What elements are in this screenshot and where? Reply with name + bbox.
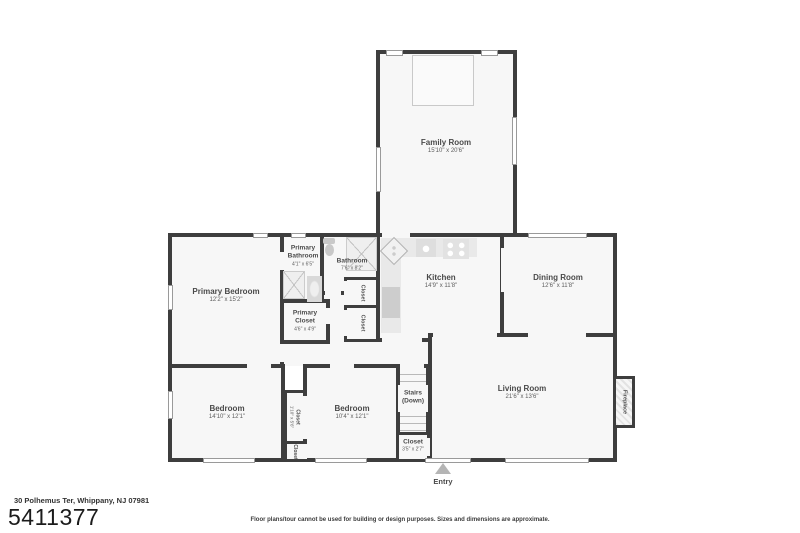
window bbox=[168, 285, 173, 310]
room-dims: 12'2" x 15'2" bbox=[192, 297, 259, 305]
room-dims: 14'9" x 11'8" bbox=[425, 283, 457, 291]
bathroom-label: Bathroom 7'6" x 8'2" bbox=[337, 258, 368, 273]
room-dims: 21'6" x 13'6" bbox=[498, 394, 546, 402]
shower-icon bbox=[283, 271, 305, 299]
bedroom-closet-lower-label: Closet bbox=[292, 444, 298, 459]
door-opening bbox=[528, 333, 586, 338]
door-opening bbox=[382, 338, 422, 342]
disclaimer-text: Floor plans/tour cannot be used for buil… bbox=[250, 517, 549, 523]
bedroom-left-label: Bedroom 14'10" x 12'1" bbox=[209, 404, 245, 422]
entry-label: Entry bbox=[433, 477, 452, 486]
bedroom-closet-label: Closet 1'10" x 5'6" bbox=[289, 406, 300, 428]
door-opening bbox=[280, 252, 284, 270]
family-room-label: Family Room 15'10" x 20'6" bbox=[421, 138, 471, 156]
hall-closet-lower-label: Closet bbox=[359, 315, 366, 332]
entry-closet-label: Closet 3'5" x 2'7" bbox=[402, 439, 424, 454]
room-dims: 15'10" x 20'6" bbox=[421, 148, 471, 156]
room-name: Bathroom bbox=[337, 258, 368, 266]
entry-arrow-icon bbox=[435, 463, 451, 474]
window bbox=[376, 147, 381, 192]
toilet-icon bbox=[325, 244, 334, 256]
door-opening bbox=[325, 291, 341, 295]
room-name: Primary bbox=[293, 309, 317, 317]
room-name: Kitchen bbox=[425, 273, 457, 283]
door-opening bbox=[303, 444, 307, 459]
mls-number: 5411377 bbox=[8, 504, 99, 531]
window bbox=[291, 233, 306, 238]
door-opening bbox=[344, 310, 348, 336]
bathroom-sink-icon bbox=[307, 276, 322, 302]
room-name: Living Room bbox=[498, 384, 546, 394]
bedroom-right-label: Bedroom 10'4" x 12'1" bbox=[334, 404, 369, 422]
room-name: Primary bbox=[288, 244, 319, 252]
door-opening bbox=[247, 364, 271, 368]
primary-bedroom-label: Primary Bedroom 12'2" x 15'2" bbox=[192, 287, 259, 305]
room-name: Bathroom bbox=[288, 253, 319, 261]
kitchen-label: Kitchen 14'9" x 11'8" bbox=[425, 273, 457, 291]
room-sub: (Down) bbox=[402, 398, 424, 406]
room-dims: 4'6" x 4'9" bbox=[293, 326, 317, 333]
door-opening bbox=[426, 438, 430, 456]
window bbox=[168, 391, 173, 419]
room-dims: 4'1" x 6'5" bbox=[288, 261, 319, 268]
family-room-inset-icon bbox=[412, 55, 474, 106]
window bbox=[528, 233, 587, 238]
stairs-label: Stairs (Down) bbox=[402, 390, 424, 407]
dishwasher-icon bbox=[416, 239, 436, 257]
primary-closet-label: Primary Closet 4'6" x 4'9" bbox=[293, 309, 317, 332]
living-room-label: Living Room 21'6" x 13'6" bbox=[498, 384, 546, 402]
room-name: Closet bbox=[402, 439, 424, 447]
stove-icon bbox=[443, 239, 469, 259]
room-dims: 7'6" x 8'2" bbox=[337, 266, 368, 273]
room-name: Family Room bbox=[421, 138, 471, 148]
door-opening bbox=[433, 333, 497, 342]
room-dims: 12'6" x 11'8" bbox=[533, 283, 583, 291]
fridge-icon bbox=[382, 287, 400, 318]
room-name: Primary Bedroom bbox=[192, 287, 259, 297]
room-name: Closet bbox=[295, 406, 301, 428]
door-opening bbox=[344, 281, 348, 305]
door-opening bbox=[501, 248, 505, 292]
window bbox=[512, 117, 517, 165]
primary-bathroom-label: Primary Bathroom 4'1" x 6'5" bbox=[288, 244, 319, 267]
room-name: Dining Room bbox=[533, 273, 583, 283]
hall-closet-upper-label: Closet bbox=[359, 285, 366, 302]
window bbox=[253, 233, 268, 238]
window bbox=[315, 458, 367, 463]
door-opening bbox=[303, 396, 307, 439]
room-dims: 1'10" x 5'6" bbox=[289, 406, 294, 428]
room-name: Stairs bbox=[402, 390, 424, 398]
room-dims: 10'4" x 12'1" bbox=[334, 414, 369, 422]
room-dims: 14'10" x 12'1" bbox=[209, 414, 245, 422]
window bbox=[203, 458, 255, 463]
room-name: Closet bbox=[293, 318, 317, 326]
door-opening bbox=[326, 308, 330, 324]
room-name: Bedroom bbox=[334, 404, 369, 414]
door-opening bbox=[330, 364, 354, 368]
room-dims: 3'5" x 2'7" bbox=[402, 447, 424, 454]
window bbox=[505, 458, 589, 463]
floor-plan-page: Family Room 15'10" x 20'6" Primary Bedro… bbox=[0, 0, 800, 533]
window bbox=[386, 50, 403, 56]
window bbox=[481, 50, 498, 56]
dining-room-label: Dining Room 12'6" x 11'8" bbox=[533, 273, 583, 291]
room-name: Bedroom bbox=[209, 404, 245, 414]
fireplace-label: Fireplace bbox=[621, 390, 628, 414]
door-opening bbox=[280, 344, 284, 362]
